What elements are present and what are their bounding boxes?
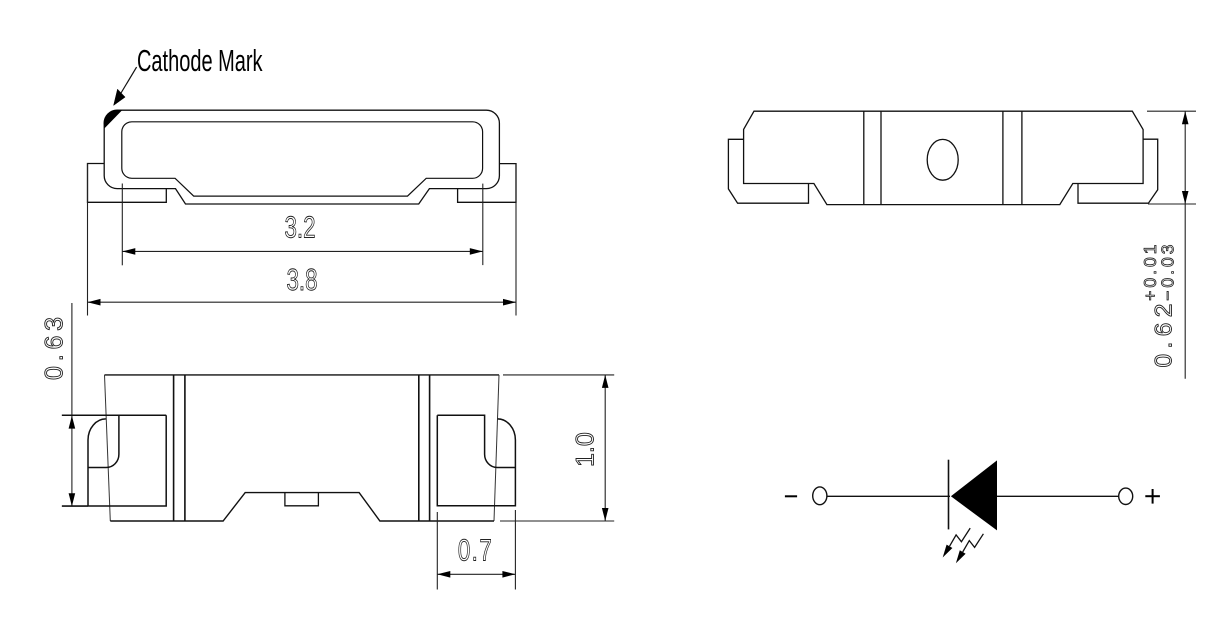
svg-text:0.7: 0.7 bbox=[458, 533, 493, 567]
svg-text:3.8: 3.8 bbox=[286, 262, 317, 296]
svg-text:0.62: 0.62 bbox=[1150, 298, 1177, 367]
svg-text:1.0: 1.0 bbox=[572, 432, 600, 467]
svg-text:Cathode Mark: Cathode Mark bbox=[137, 42, 263, 78]
svg-text:−0.03: −0.03 bbox=[1158, 242, 1178, 301]
svg-text:0.63: 0.63 bbox=[41, 312, 69, 380]
svg-text:3.2: 3.2 bbox=[284, 210, 315, 244]
